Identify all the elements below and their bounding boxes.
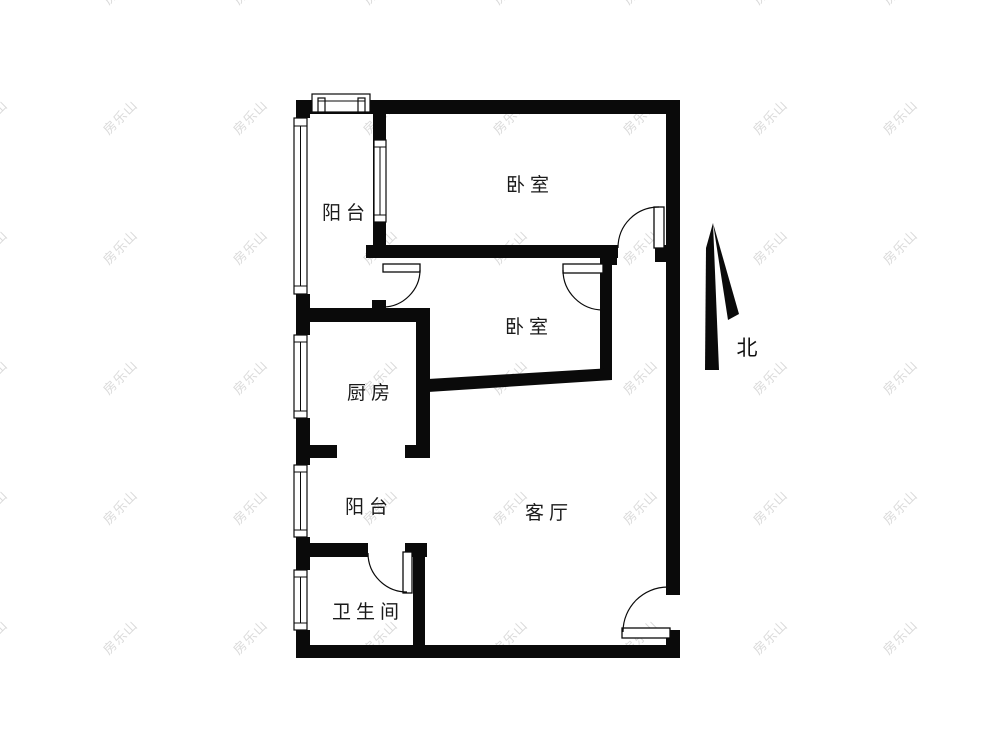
wall-kitchen-bottom-left	[296, 445, 337, 458]
window-balcony-bedroom1	[374, 140, 386, 222]
room-label-kitchen: 厨房	[347, 382, 395, 404]
wall-balcony-door-pier	[372, 300, 386, 310]
wall-balcony-bathroom-divider	[296, 543, 368, 557]
wall-kitchen-right	[416, 308, 430, 458]
wall-left-pier-1	[296, 100, 310, 118]
wall-bedroom2-right	[600, 265, 612, 380]
room-label-bathroom: 卫生间	[332, 601, 404, 623]
room-label-bedroom-mid: 卧室	[505, 316, 553, 338]
window-bathroom-left	[294, 570, 307, 630]
room-label-living-room: 客厅	[525, 502, 573, 524]
wall-kitchen-top	[296, 308, 425, 322]
compass-north-label: 北	[737, 336, 758, 360]
wall-left-pier-5	[296, 630, 310, 650]
window-balcony-mid-left	[294, 465, 307, 537]
wall-outer-bottom	[296, 645, 680, 658]
window-kitchen-left	[294, 335, 307, 418]
window-balcony-top-bay	[312, 94, 370, 112]
room-label-balcony-mid: 阳台	[345, 496, 393, 518]
wall-kitchen-bottom-right	[405, 445, 430, 458]
floorplan-svg: 房乐山	[0, 0, 1000, 750]
wall-outer-right-upper	[666, 100, 680, 595]
floorplan-canvas: 房乐山	[0, 0, 1000, 750]
wall-bedroom2-top-block	[600, 250, 617, 265]
wall-bathroom-right	[413, 550, 425, 650]
window-balcony-top-left	[294, 118, 307, 294]
room-label-bedroom-top: 卧室	[506, 174, 554, 196]
room-label-balcony-top: 阳台	[322, 202, 370, 224]
wall-bedroom1-bottom	[366, 245, 618, 258]
